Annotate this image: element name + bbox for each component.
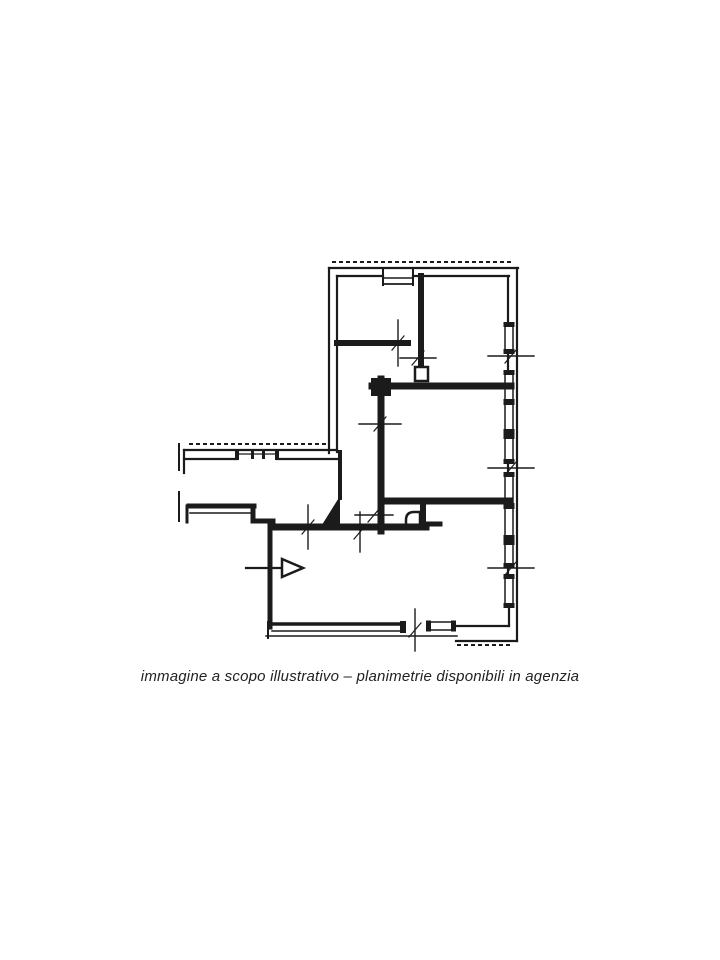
wall-post xyxy=(415,367,428,381)
window-right xyxy=(505,402,513,432)
floor-plan-svg xyxy=(0,0,720,960)
window-cap xyxy=(504,370,515,375)
entrance-arrow-head xyxy=(282,559,303,577)
window-cap xyxy=(504,434,515,439)
window-cap xyxy=(504,603,515,608)
window-cap xyxy=(504,535,515,540)
caption: immagine a scopo illustrativo – planimet… xyxy=(0,668,720,685)
door-triangle-marker xyxy=(320,496,340,528)
window-cap xyxy=(400,621,406,633)
window-cap xyxy=(275,450,279,460)
window-right xyxy=(505,506,513,538)
window-right xyxy=(505,436,513,462)
window-cap xyxy=(504,322,515,327)
window-cap xyxy=(504,400,515,405)
window-right xyxy=(505,324,513,352)
window-cap xyxy=(251,451,254,459)
window-cap xyxy=(504,459,515,464)
window-bottom xyxy=(428,622,454,630)
window-cap xyxy=(262,451,265,459)
window-cap xyxy=(504,429,515,434)
window-cap xyxy=(235,450,239,460)
window-right xyxy=(505,576,513,606)
window-cap xyxy=(504,504,515,509)
window-cap xyxy=(426,621,431,632)
window-cap xyxy=(504,540,515,545)
window-right xyxy=(505,542,513,566)
page: immagine a scopo illustrativo – planimet… xyxy=(0,0,720,960)
